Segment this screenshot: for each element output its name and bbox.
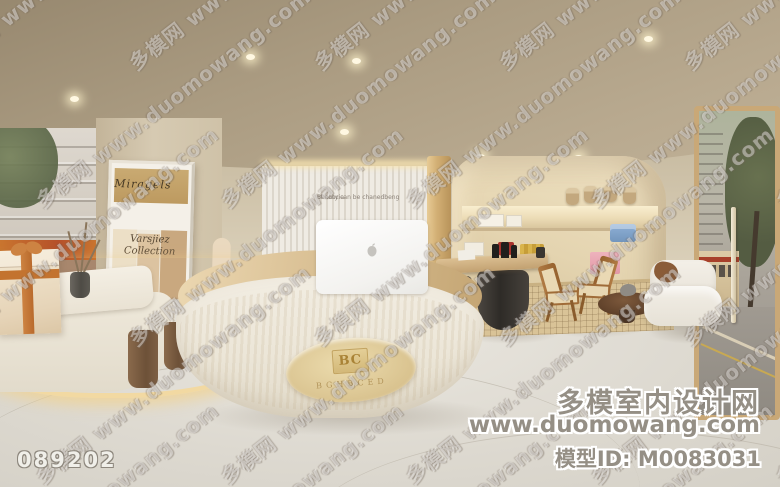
poster-title: Miragels	[114, 177, 172, 191]
cosmetic-bottle	[511, 245, 517, 258]
interior-render: Miragels Varsjiez Collection Be	[0, 0, 780, 487]
street-building	[699, 125, 723, 255]
product-box	[506, 215, 522, 227]
ribbon	[0, 269, 60, 280]
ceiling-spotlight-icon	[70, 96, 79, 102]
hat-box	[566, 188, 579, 205]
hat-box	[584, 186, 597, 203]
figurine	[536, 247, 545, 258]
wood-stool	[128, 330, 158, 388]
imac-display	[316, 220, 428, 294]
render-id: 089202	[17, 448, 117, 472]
ceiling-spotlight-icon	[340, 129, 349, 135]
display-table-base	[477, 270, 529, 330]
sofa-seat	[644, 286, 722, 326]
poster-subtitle: Varsjiez Collection	[111, 233, 188, 258]
cove-light-glow	[262, 160, 430, 168]
product-box	[458, 249, 476, 260]
wall-quote-line: of concia	[317, 193, 344, 202]
boucle-sofa	[644, 254, 722, 334]
gift-box	[0, 249, 61, 335]
cosmetic-bottle	[501, 242, 509, 258]
blue-handbag	[610, 224, 636, 242]
hat-box	[623, 187, 636, 204]
product-box	[478, 214, 504, 227]
vase	[70, 272, 90, 298]
cosmetic-bottle	[492, 244, 499, 258]
apple-logo-icon	[365, 242, 379, 258]
coffee-table-base	[619, 310, 635, 323]
brand-monogram: BC	[332, 348, 370, 374]
poster-header: Miragels	[114, 168, 189, 204]
ceiling-spotlight-icon	[644, 36, 653, 42]
site-url-watermark: www.duomowang.com	[469, 412, 760, 438]
branch-vase	[52, 228, 108, 298]
ceiling-spotlight-icon	[246, 54, 255, 60]
hat-box	[604, 185, 617, 202]
brand-name: BGHBCED	[287, 374, 417, 392]
ceiling-spotlight-icon	[352, 58, 361, 64]
branch	[67, 231, 80, 274]
model-id-label: 模型ID: M0083031	[555, 443, 761, 473]
door-handle	[731, 207, 736, 323]
